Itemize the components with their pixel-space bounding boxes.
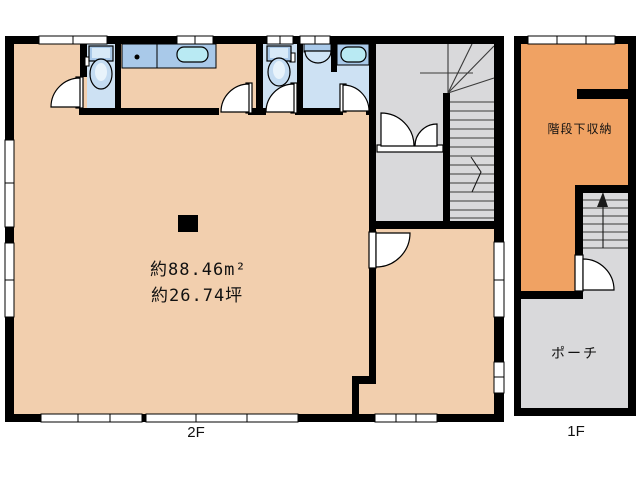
- window: [300, 36, 330, 44]
- sink-basin-icon: [177, 47, 208, 62]
- area-m2-label: 約88.46m²: [150, 260, 247, 280]
- window: [5, 140, 14, 227]
- window: [494, 362, 504, 393]
- pillar: [178, 215, 198, 232]
- floor-plan-canvas: 約88.46m² 約26.74坪 2F: [0, 0, 640, 480]
- window: [494, 242, 504, 317]
- floor2-label: 2F: [187, 424, 205, 441]
- window: [146, 414, 298, 422]
- laundry-counter: [122, 44, 216, 68]
- window: [41, 414, 142, 422]
- area-tsubo-label: 約26.74坪: [151, 286, 243, 306]
- storage-door-panel: [575, 255, 583, 291]
- porch-label: ポーチ: [551, 345, 599, 361]
- floor2-plan: 約88.46m² 約26.74坪 2F: [5, 36, 504, 441]
- storage-label: 階段下収納: [547, 121, 612, 136]
- window: [5, 243, 14, 317]
- window: [177, 36, 213, 44]
- window: [528, 36, 615, 44]
- bathtub-icon: [337, 44, 369, 65]
- floor1-plan: 階段下収納 ポーチ 1F: [514, 36, 636, 440]
- window: [39, 36, 107, 44]
- faucet-dot-icon: [135, 55, 140, 60]
- window: [267, 36, 293, 44]
- bedroom-door-panel: [369, 232, 376, 268]
- floor1-label: 1F: [567, 423, 585, 440]
- window: [375, 414, 437, 422]
- floor-plan-page: 約88.46m² 約26.74坪 2F: [0, 0, 640, 480]
